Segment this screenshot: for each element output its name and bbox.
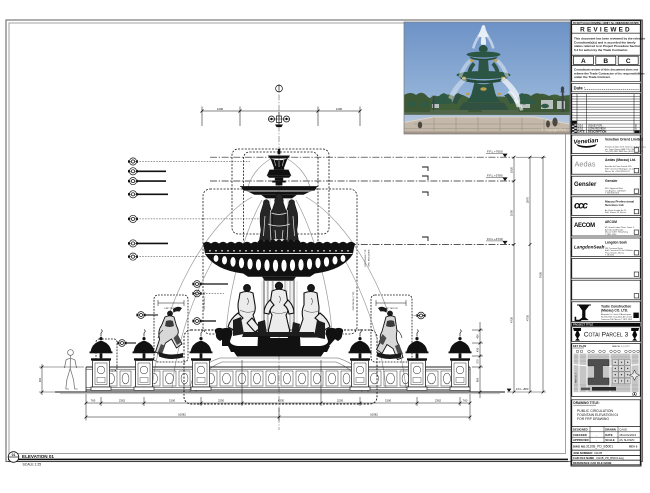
svg-text:3110B_PD_B5001: 3110B_PD_B5001 xyxy=(586,445,613,449)
svg-text:DO NOT SCALE DRAWING. VERIFY A: DO NOT SCALE DRAWING. VERIFY ALL DIMENSI… xyxy=(573,21,639,25)
svg-text:-: - xyxy=(596,438,597,442)
svg-text:© Copyright Ph.A: © Copyright Ph.A xyxy=(541,128,567,132)
svg-text:ELEVATION 01: ELEVATION 01 xyxy=(22,454,54,459)
svg-text:2870: 2870 xyxy=(526,196,530,203)
svg-text:APPROVED: APPROVED xyxy=(573,438,589,442)
svg-text:15/AUG/2016: 15/AUG/2016 xyxy=(619,433,636,437)
svg-text:7600: 7600 xyxy=(539,271,543,278)
svg-text:FRP TRITON: FRP TRITON xyxy=(164,308,177,310)
svg-text:2362: 2362 xyxy=(119,399,126,403)
svg-text:3110B: 3110B xyxy=(594,451,602,455)
svg-text:DRAWN: DRAWN xyxy=(605,427,616,431)
svg-text:A: A xyxy=(635,127,637,131)
svg-text:F.F.L +800: F.F.L +800 xyxy=(516,387,529,391)
svg-text:430: 430 xyxy=(476,347,480,352)
svg-text:FOR FRP DRAWING: FOR FRP DRAWING xyxy=(577,417,609,421)
svg-text:CHECKED: CHECKED xyxy=(573,433,587,437)
svg-text:under the Trade Contract.: under the Trade Contract. xyxy=(574,75,611,79)
svg-text:5.4 for action by the Trade Co: 5.4 for action by the Trade Contractor. xyxy=(574,48,628,52)
svg-text:DWG NO.: DWG NO. xyxy=(573,445,586,449)
svg-text:4730: 4730 xyxy=(526,314,530,321)
svg-text:2362: 2362 xyxy=(435,399,442,403)
svg-text:1290: 1290 xyxy=(336,107,343,111)
svg-text:COTAI PARCEL 3: COTAI PARCEL 3 xyxy=(584,332,629,339)
svg-text:4730: 4730 xyxy=(510,316,514,323)
svg-text:FRP FINISH TYP.: FRP FINISH TYP. xyxy=(365,249,367,267)
svg-text:T 323.863.8100: T 323.863.8100 xyxy=(605,193,620,195)
svg-text:SCALE 1:25: SCALE 1:25 xyxy=(23,462,42,466)
svg-text:Langdon Seah: Langdon Seah xyxy=(605,241,627,245)
svg-text:Macau Tel: +853 2833 1123: Macau Tel: +853 2833 1123 xyxy=(605,171,630,173)
svg-text:F.F.L +5780: F.F.L +5780 xyxy=(487,173,503,177)
svg-text:Services Ltd.: Services Ltd. xyxy=(605,203,624,207)
svg-text:LangdonSeah: LangdonSeah xyxy=(574,245,605,250)
svg-text:KEY PLAN: KEY PLAN xyxy=(573,344,586,348)
svg-text:Gensler: Gensler xyxy=(605,179,618,183)
svg-text:1050: 1050 xyxy=(510,209,514,216)
svg-text:DESIGNED: DESIGNED xyxy=(573,427,588,431)
svg-text:JOB NUMBER: JOB NUMBER xyxy=(573,451,593,455)
svg-text:REV 0: REV 0 xyxy=(629,445,638,449)
svg-text:PARCEL 1, LOT 1: PARCEL 1, LOT 1 xyxy=(612,345,630,348)
svg-text:FRP FINISH (TYP): FRP FINISH (TYP) xyxy=(353,292,355,311)
svg-text:F.F.L +4730: F.F.L +4730 xyxy=(487,237,503,241)
svg-text:DRAWING TITLE:: DRAWING TITLE: xyxy=(573,401,599,405)
svg-text:1290: 1290 xyxy=(217,107,224,111)
svg-text:FRP TRITON: FRP TRITON xyxy=(384,308,397,310)
svg-text:Edif. Tribuna 2F, Macau: Edif. Tribuna 2F, Macau xyxy=(605,212,626,214)
svg-text:Date :: Date : xyxy=(574,85,586,90)
svg-text:DATE: DATE xyxy=(578,130,585,134)
svg-text:PARCEL 3: PARCEL 3 xyxy=(574,372,577,383)
svg-text:2250: 2250 xyxy=(337,399,344,403)
svg-text:DESCRIPTION: DESCRIPTION xyxy=(588,130,606,134)
svg-text:B: B xyxy=(603,58,608,65)
svg-text:760: 760 xyxy=(463,399,468,403)
svg-text:F.F.L +7600: F.F.L +7600 xyxy=(487,150,503,154)
svg-text:CAD FILE NAME: CAD FILE NAME xyxy=(573,456,594,460)
svg-text:Aedas: Aedas xyxy=(575,160,596,169)
svg-text:900: 900 xyxy=(38,377,42,382)
svg-text:370: 370 xyxy=(476,359,480,364)
svg-text:ccc: ccc xyxy=(574,201,588,212)
svg-text:01: 01 xyxy=(12,453,16,457)
svg-text:SCALE: SCALE xyxy=(605,438,615,442)
svg-text:(Macau) CO. LTD.: (Macau) CO. LTD. xyxy=(601,308,628,312)
svg-text:Aedas (Macau) Ltd.: Aedas (Macau) Ltd. xyxy=(605,158,636,162)
svg-text:PROJECT TITLE: PROJECT TITLE xyxy=(573,323,593,327)
svg-text:AS SHOWN: AS SHOWN xyxy=(619,438,634,442)
svg-text:REVIEWED: REVIEWED xyxy=(580,26,632,33)
svg-text:1820: 1820 xyxy=(510,166,514,173)
svg-text:T 2832 1999: T 2832 1999 xyxy=(605,234,617,236)
svg-text:3100: 3100 xyxy=(169,399,176,403)
svg-text:3100: 3100 xyxy=(385,399,392,403)
svg-text:450: 450 xyxy=(476,334,480,339)
svg-text:Venetian Orient Limited: Venetian Orient Limited xyxy=(605,138,643,142)
svg-text:C: C xyxy=(626,58,631,65)
svg-text:800: 800 xyxy=(476,377,480,382)
svg-text:10582: 10582 xyxy=(370,413,378,417)
svg-text:4330: 4330 xyxy=(278,399,285,403)
svg-text:10582: 10582 xyxy=(178,413,186,417)
svg-text:2250: 2250 xyxy=(218,399,225,403)
svg-text:Gensler: Gensler xyxy=(574,182,597,188)
svg-text:760: 760 xyxy=(91,399,96,403)
svg-text:DATE: DATE xyxy=(605,433,613,437)
svg-text:-: - xyxy=(596,433,597,437)
svg-text:CAAD: CAAD xyxy=(619,427,627,431)
svg-text:3110B_PD_B5001.dwg: 3110B_PD_B5001.dwg xyxy=(596,456,624,460)
svg-text:AECOM: AECOM xyxy=(574,223,595,229)
svg-text:Comercio 10F, Macau T 2875 33: Comercio 10F, Macau T 2875 3322 xyxy=(601,319,633,321)
svg-text:FRP FINISH (TYP): FRP FINISH (TYP) xyxy=(204,292,206,311)
svg-text:GRC MOULDING: GRC MOULDING xyxy=(369,249,371,267)
svg-text:AECOM: AECOM xyxy=(605,220,617,224)
svg-text:REFERENCE CAD FILE NAME: REFERENCE CAD FILE NAME xyxy=(573,461,612,465)
svg-text:A: A xyxy=(581,58,586,65)
svg-text:T 28 2823: T 28 2823 xyxy=(605,255,615,257)
